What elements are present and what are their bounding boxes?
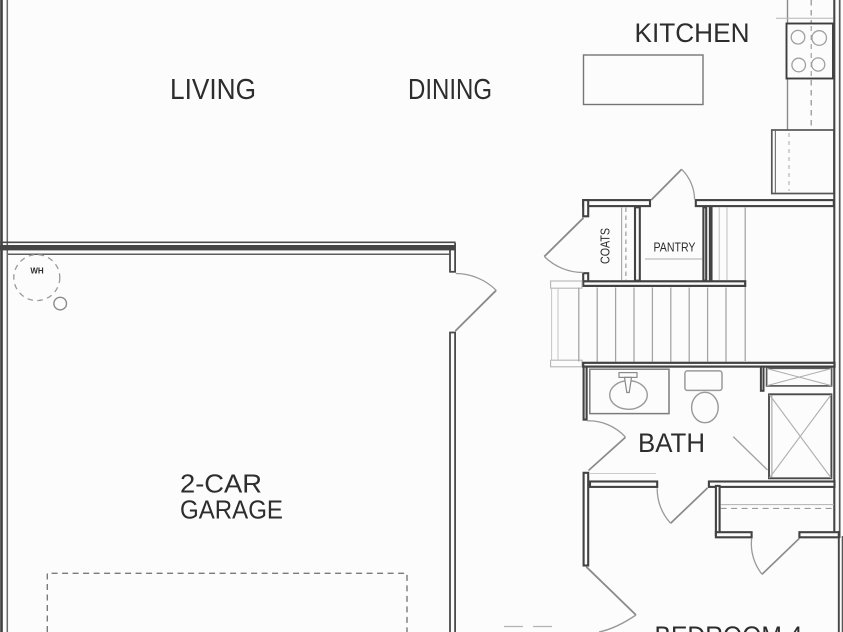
svg-text:BEDROOM 4: BEDROOM 4	[655, 621, 803, 632]
svg-text:PANTRY: PANTRY	[654, 241, 697, 255]
svg-text:KITCHEN: KITCHEN	[635, 18, 750, 48]
svg-text:WH: WH	[30, 267, 44, 276]
svg-text:LIVING: LIVING	[170, 74, 256, 106]
svg-text:DINING: DINING	[408, 74, 492, 106]
svg-text:2-CAR: 2-CAR	[180, 470, 262, 498]
svg-text:GARAGE: GARAGE	[180, 497, 283, 525]
svg-text:BATH: BATH	[638, 428, 705, 458]
svg-text:COATS: COATS	[599, 228, 613, 264]
